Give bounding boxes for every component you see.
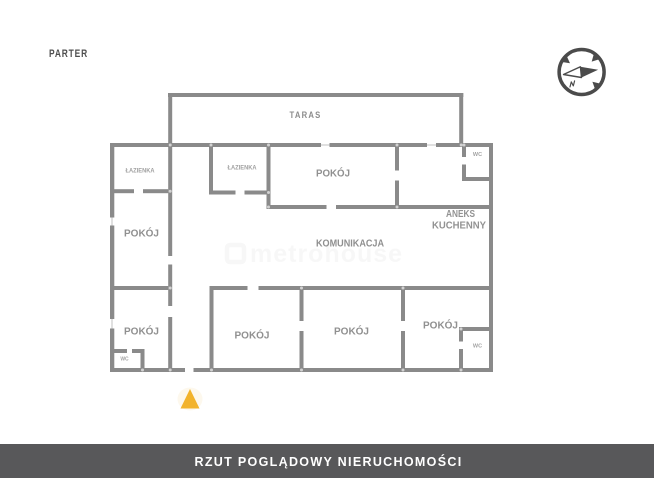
svg-text:ŁAZIENKA: ŁAZIENKA <box>228 165 257 172</box>
svg-text:WC: WC <box>473 344 482 350</box>
svg-text:WC: WC <box>473 152 482 158</box>
svg-text:POKÓJ: POKÓJ <box>124 325 159 338</box>
svg-text:ANEKS: ANEKS <box>446 209 475 220</box>
svg-text:RZUT POGLĄDOWY NIERUCHOMOŚCI: RZUT POGLĄDOWY NIERUCHOMOŚCI <box>195 454 463 469</box>
svg-text:KOMUNIKACJA: KOMUNIKACJA <box>316 239 384 250</box>
svg-text:TARAS: TARAS <box>290 110 322 121</box>
svg-text:POKÓJ: POKÓJ <box>124 227 159 240</box>
svg-text:POKÓJ: POKÓJ <box>316 167 350 180</box>
svg-text:PARTER: PARTER <box>49 48 88 60</box>
svg-text:POKÓJ: POKÓJ <box>334 325 369 338</box>
svg-text:KUCHENNY: KUCHENNY <box>432 221 486 232</box>
svg-text:POKÓJ: POKÓJ <box>423 319 458 332</box>
svg-text:WC: WC <box>120 357 129 363</box>
svg-text:ŁAZIENKA: ŁAZIENKA <box>126 168 155 175</box>
svg-text:POKÓJ: POKÓJ <box>235 329 270 342</box>
